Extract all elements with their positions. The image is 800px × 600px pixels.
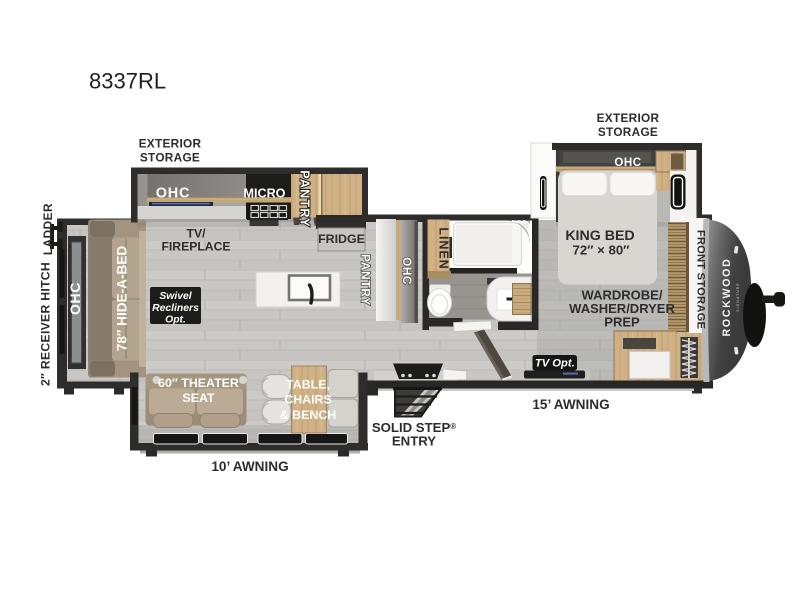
svg-text:OHC: OHC xyxy=(400,257,414,285)
svg-text:60″ THEATER: 60″ THEATER xyxy=(158,376,239,390)
svg-text:STORAGE: STORAGE xyxy=(598,125,658,139)
svg-text:TABLE,: TABLE, xyxy=(286,378,330,392)
svg-text:78″ HIDE-A-BED: 78″ HIDE-A-BED xyxy=(115,246,130,352)
svg-text:EXTERIOR: EXTERIOR xyxy=(597,111,660,125)
svg-text:2″ RECEIVER HITCH: 2″ RECEIVER HITCH xyxy=(39,262,53,386)
svg-text:PREP: PREP xyxy=(604,315,640,330)
svg-text:SIGNATURE: SIGNATURE xyxy=(736,282,740,311)
svg-text:15’ AWNING: 15’ AWNING xyxy=(532,397,609,412)
svg-text:SEAT: SEAT xyxy=(182,391,215,405)
svg-text:CHAIRS: CHAIRS xyxy=(284,393,332,407)
svg-text:OHC: OHC xyxy=(67,282,83,315)
svg-text:10’ AWNING: 10’ AWNING xyxy=(211,459,288,474)
svg-text:LINEN: LINEN xyxy=(437,227,451,269)
svg-text:72″ × 80″: 72″ × 80″ xyxy=(573,243,631,258)
svg-text:LADDER: LADDER xyxy=(41,203,55,255)
svg-text:EXTERIOR: EXTERIOR xyxy=(139,137,202,151)
svg-text:FIREPLACE: FIREPLACE xyxy=(161,240,230,254)
svg-text:STORAGE: STORAGE xyxy=(140,150,200,164)
svg-text:PANTRY: PANTRY xyxy=(359,254,373,306)
svg-text:8337RL: 8337RL xyxy=(89,69,166,94)
svg-text:OHC: OHC xyxy=(156,186,191,202)
svg-text:PANTRY: PANTRY xyxy=(298,170,312,228)
svg-text:FRIDGE: FRIDGE xyxy=(318,232,365,246)
svg-text:Opt.: Opt. xyxy=(165,315,186,326)
svg-text:ENTRY: ENTRY xyxy=(392,434,436,449)
svg-text:ROCKWOOD: ROCKWOOD xyxy=(721,258,733,337)
svg-text:& BENCH: & BENCH xyxy=(280,408,336,422)
svg-text:TV Opt.: TV Opt. xyxy=(535,358,575,370)
svg-text:TV/: TV/ xyxy=(187,227,207,241)
svg-text:Swivel: Swivel xyxy=(159,291,192,302)
svg-text:FRONT STORAGE: FRONT STORAGE xyxy=(695,230,707,330)
svg-text:Recliners: Recliners xyxy=(152,303,199,314)
svg-text:MICRO: MICRO xyxy=(244,187,286,201)
svg-text:OHC: OHC xyxy=(614,156,641,169)
